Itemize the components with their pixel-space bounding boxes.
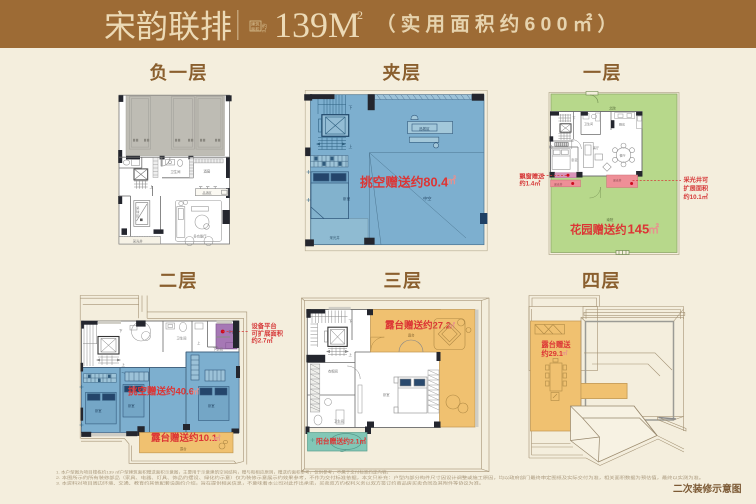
svg-text:上: 上 bbox=[150, 184, 154, 189]
svg-text:厨房: 厨房 bbox=[619, 122, 625, 127]
svg-text:卧室: 卧室 bbox=[208, 403, 215, 408]
svg-text:㎡: ㎡ bbox=[448, 321, 455, 330]
svg-text:北院: 北院 bbox=[609, 106, 616, 111]
svg-text:挑空赠送约40.6: 挑空赠送约40.6 bbox=[128, 386, 194, 398]
svg-text:卫生间: 卫生间 bbox=[171, 169, 181, 174]
svg-text:卫生间: 卫生间 bbox=[584, 121, 593, 126]
svg-text:采光井: 采光井 bbox=[330, 235, 341, 240]
svg-text:酒窖: 酒窖 bbox=[204, 169, 211, 174]
svg-text:露台赠送约10.1: 露台赠送约10.1 bbox=[151, 432, 218, 444]
svg-text:3. 本资料对项目周边环境、交通、教育约其他配套设施约介绍，: 3. 本资料对项目周边环境、交通、教育约其他配套设施约介绍，旨在提供相关信息，不… bbox=[56, 480, 484, 486]
svg-text:㎡: ㎡ bbox=[214, 434, 221, 443]
svg-text:约29.1: 约29.1 bbox=[541, 349, 563, 358]
svg-text:约1.4㎡: 约1.4㎡ bbox=[520, 180, 542, 188]
svg-text:二次装修示意图: 二次装修示意图 bbox=[673, 482, 742, 495]
svg-text:扩展面积: 扩展面积 bbox=[684, 185, 710, 193]
svg-text:采光井可: 采光井可 bbox=[683, 176, 709, 184]
svg-text:多功能厅: 多功能厅 bbox=[193, 234, 207, 239]
svg-text:花园赠送约: 花园赠送约 bbox=[570, 223, 627, 237]
svg-text:145: 145 bbox=[628, 222, 650, 237]
svg-text:衣帽间: 衣帽间 bbox=[328, 369, 338, 374]
svg-text:挑空赠送约80.4: 挑空赠送约80.4 bbox=[360, 175, 448, 190]
svg-text:采光井: 采光井 bbox=[613, 179, 622, 183]
svg-text:卧室: 卧室 bbox=[343, 196, 351, 201]
svg-text:卧室: 卧室 bbox=[95, 408, 102, 413]
svg-text:约2.7㎡: 约2.7㎡ bbox=[252, 336, 274, 345]
svg-text:约10.1㎡: 约10.1㎡ bbox=[684, 193, 709, 201]
svg-text:㎡: ㎡ bbox=[648, 222, 659, 236]
svg-text:品酒区: 品酒区 bbox=[203, 190, 212, 195]
svg-text:卧室: 卧室 bbox=[572, 157, 578, 162]
svg-text:阳台赠送约2.1㎡: 阳台赠送约2.1㎡ bbox=[316, 437, 366, 446]
svg-text:南院: 南院 bbox=[607, 217, 614, 222]
svg-text:卫生间: 卫生间 bbox=[177, 336, 187, 341]
svg-text:餐厅: 餐厅 bbox=[620, 153, 626, 158]
svg-text:1. 本户型图为项目楼栋约139 ㎡户型建筑面积赠送面积示意: 1. 本户型图为项目楼栋约139 ㎡户型建筑面积赠送面积示意图，主要用于示意建筑… bbox=[56, 469, 391, 475]
svg-text:下: 下 bbox=[349, 106, 353, 110]
svg-text:㎡: ㎡ bbox=[447, 175, 457, 187]
svg-text:卧室: 卧室 bbox=[383, 392, 390, 397]
svg-text:露台赠送: 露台赠送 bbox=[541, 340, 571, 349]
svg-text:设备平台: 设备平台 bbox=[252, 321, 277, 330]
svg-text:卫生间: 卫生间 bbox=[334, 419, 344, 424]
svg-text:㎡: ㎡ bbox=[192, 387, 199, 396]
svg-text:上: 上 bbox=[349, 144, 353, 149]
svg-text:品茗区: 品茗区 bbox=[419, 126, 430, 131]
svg-text:可扩展面积: 可扩展面积 bbox=[252, 328, 284, 337]
svg-text:露台: 露台 bbox=[180, 446, 187, 451]
svg-text:客厅: 客厅 bbox=[593, 145, 599, 150]
svg-text:露台: 露台 bbox=[408, 333, 415, 338]
svg-text:区: 区 bbox=[136, 214, 139, 218]
svg-text:下: 下 bbox=[573, 116, 576, 120]
svg-text:2. 本图所示约所有装修部品（家具、电器、灯具、饰品约摆设、: 2. 本图所示约所有装修部品（家具、电器、灯具、饰品约摆设、绿化约示意）仅为装修… bbox=[56, 474, 704, 480]
svg-text:卧室: 卧室 bbox=[128, 403, 135, 408]
svg-text:飘窗赠送: 飘窗赠送 bbox=[520, 173, 546, 181]
svg-text:下卫间: 下卫间 bbox=[213, 347, 223, 352]
svg-text:采光井: 采光井 bbox=[133, 239, 144, 244]
svg-text:采光井: 采光井 bbox=[554, 182, 563, 186]
svg-text:㎡: ㎡ bbox=[562, 349, 568, 357]
svg-text:中空: 中空 bbox=[423, 195, 431, 202]
svg-text:露台赠送约27.2: 露台赠送约27.2 bbox=[385, 320, 451, 332]
